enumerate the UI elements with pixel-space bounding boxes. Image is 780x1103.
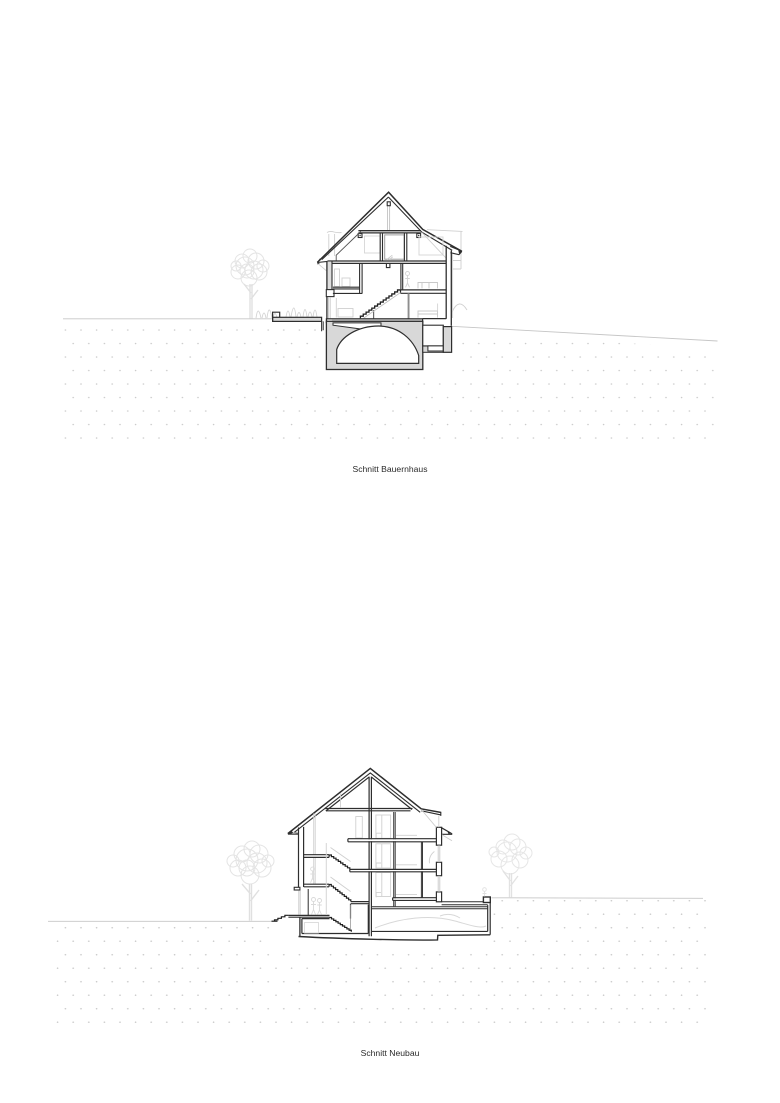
svg-text:Schnitt Bauernhaus: Schnitt Bauernhaus <box>352 464 427 474</box>
svg-text:Schnitt Neubau: Schnitt Neubau <box>361 1048 420 1058</box>
